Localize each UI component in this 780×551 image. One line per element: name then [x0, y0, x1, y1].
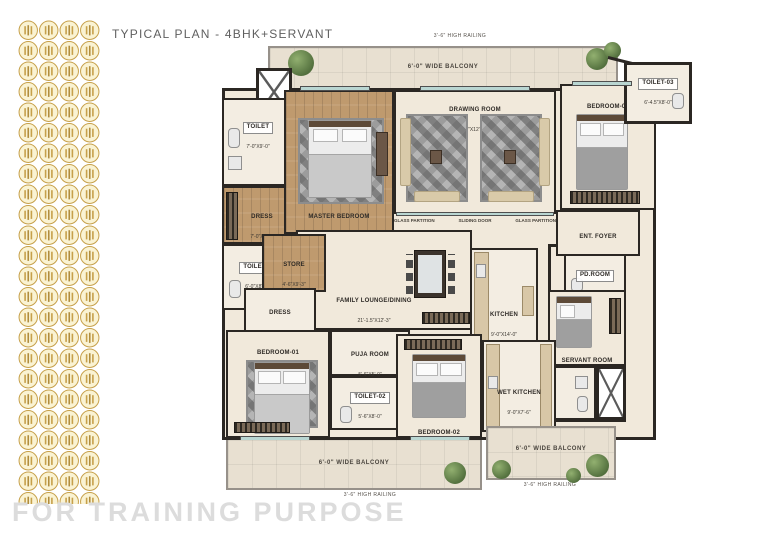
pillow-icon: [560, 305, 575, 318]
balcony-bottom-label: 6'-0" WIDE BALCONY: [228, 460, 480, 468]
kitchen-counter-icon: [540, 344, 552, 428]
x-cross-icon: [599, 369, 623, 417]
coffee-table-icon: [430, 150, 442, 164]
bed-headboard: [557, 297, 591, 303]
room-store: STORE 4'-6"X9'-3": [262, 234, 326, 292]
pillow-icon: [580, 123, 601, 136]
pillow-icon: [313, 129, 339, 142]
toilet-sink-icon: [228, 156, 242, 170]
room-wet-kitchen: WET KITCHEN 9'-0"X7'-6": [482, 340, 556, 432]
wardrobe-icon: [234, 422, 290, 433]
window-glass: [420, 86, 530, 91]
dining-table-top: [418, 255, 442, 293]
bed-blanket: [577, 147, 627, 189]
dining-chairs-icon: [448, 254, 455, 294]
balcony-top-label: 6'-0" WIDE BALCONY: [270, 64, 616, 72]
bed-headboard: [309, 121, 371, 127]
sofa-icon: [414, 191, 460, 202]
window-glass: [300, 86, 370, 91]
sink-icon: [575, 376, 588, 389]
top-railing-label: 3'-6" HIGH RAILING: [380, 33, 540, 39]
room-servant-room: SERVANT ROOM 6'-10.5"X8'-0": [548, 290, 626, 366]
pillow-icon: [440, 363, 462, 376]
bed-blanket: [557, 319, 591, 348]
room-bedroom-02: BEDROOM-02 11'-6"X15'-0": [396, 334, 482, 438]
glass-partition: [396, 212, 554, 216]
window-glass: [572, 81, 632, 86]
pillow-icon: [603, 123, 624, 136]
sofa-icon: [400, 118, 411, 186]
dining-table-icon: [414, 250, 446, 298]
bed-icon: [556, 296, 592, 348]
sofa-icon: [488, 191, 534, 202]
watermark-text: FOR TRAINING PURPOSE: [12, 497, 407, 528]
shaft: [596, 366, 626, 420]
bed-headboard: [255, 363, 309, 369]
dining-chairs-icon: [406, 254, 413, 294]
bed-blanket: [309, 154, 371, 197]
plant-icon: [492, 460, 511, 479]
bed-icon: [576, 114, 628, 190]
sliding-door-label: SLIDING DOOR: [458, 218, 491, 223]
bed-headboard: [413, 355, 465, 361]
bed-blanket: [413, 382, 465, 417]
floor-plan: 3'-6" HIGH RAILING 6'-0" WIDE BALCONY TO…: [0, 0, 780, 551]
room-master-bedroom: MASTER BEDROOM 12'-1.5"X17'-0": [284, 90, 394, 234]
toilet-wc-icon: [228, 128, 240, 148]
kitchen-counter-icon: [522, 286, 534, 316]
sink-icon: [476, 264, 486, 278]
plant-icon: [566, 468, 581, 483]
toilet-wc-icon: [672, 93, 684, 109]
wardrobe-icon: [570, 191, 640, 204]
partition-labels: GLASS PARTITION SLIDING DOOR GLASS PARTI…: [394, 218, 556, 223]
toilet-wc-icon: [229, 280, 241, 298]
glass-partition-label: GLASS PARTITION: [515, 218, 556, 223]
glass-partition-label: GLASS PARTITION: [394, 218, 435, 223]
wardrobe-icon: [609, 298, 621, 334]
room-bedroom-01: BEDROOM-01 12'-0"X15'-0": [226, 330, 330, 438]
coffee-table-icon: [504, 150, 516, 164]
console-icon: [422, 312, 470, 324]
plant-icon: [586, 454, 609, 477]
sofa-icon: [539, 118, 550, 186]
pillow-icon: [342, 129, 368, 142]
sink-icon: [488, 376, 498, 389]
bottom-right-railing-label: 3'-6" HIGH RAILING: [470, 482, 630, 488]
plant-icon: [444, 462, 466, 484]
wardrobe-icon: [404, 339, 462, 350]
pillow-icon: [416, 363, 438, 376]
room-ent-foyer: ENT. FOYER 7'-4.5"X5'-0": [556, 210, 640, 256]
room-dress-2: DRESS 6'-3"X6'-7.5": [244, 288, 316, 334]
bed-icon: [308, 120, 372, 198]
room-label: STORE 4'-6"X9'-3": [264, 252, 324, 292]
dresser-icon: [376, 132, 388, 176]
bed-icon: [412, 354, 466, 418]
toilet-wc-icon: [340, 406, 352, 423]
balcony-bottom: 6'-0" WIDE BALCONY: [226, 440, 482, 490]
pillow-icon: [283, 371, 306, 384]
room-drawing-room: DRAWING ROOM 20'-0"X12'-10.5": [394, 90, 556, 214]
balcony-bottom-right-label: 6'-0" WIDE BALCONY: [488, 446, 614, 454]
wardrobe-icon: [226, 192, 238, 240]
toilet-wc-icon: [577, 396, 588, 412]
pillow-icon: [258, 371, 281, 384]
room-toilet-03: TOILET-03 6'-4.5"X8'-0": [624, 62, 692, 124]
bed-headboard: [577, 115, 627, 121]
